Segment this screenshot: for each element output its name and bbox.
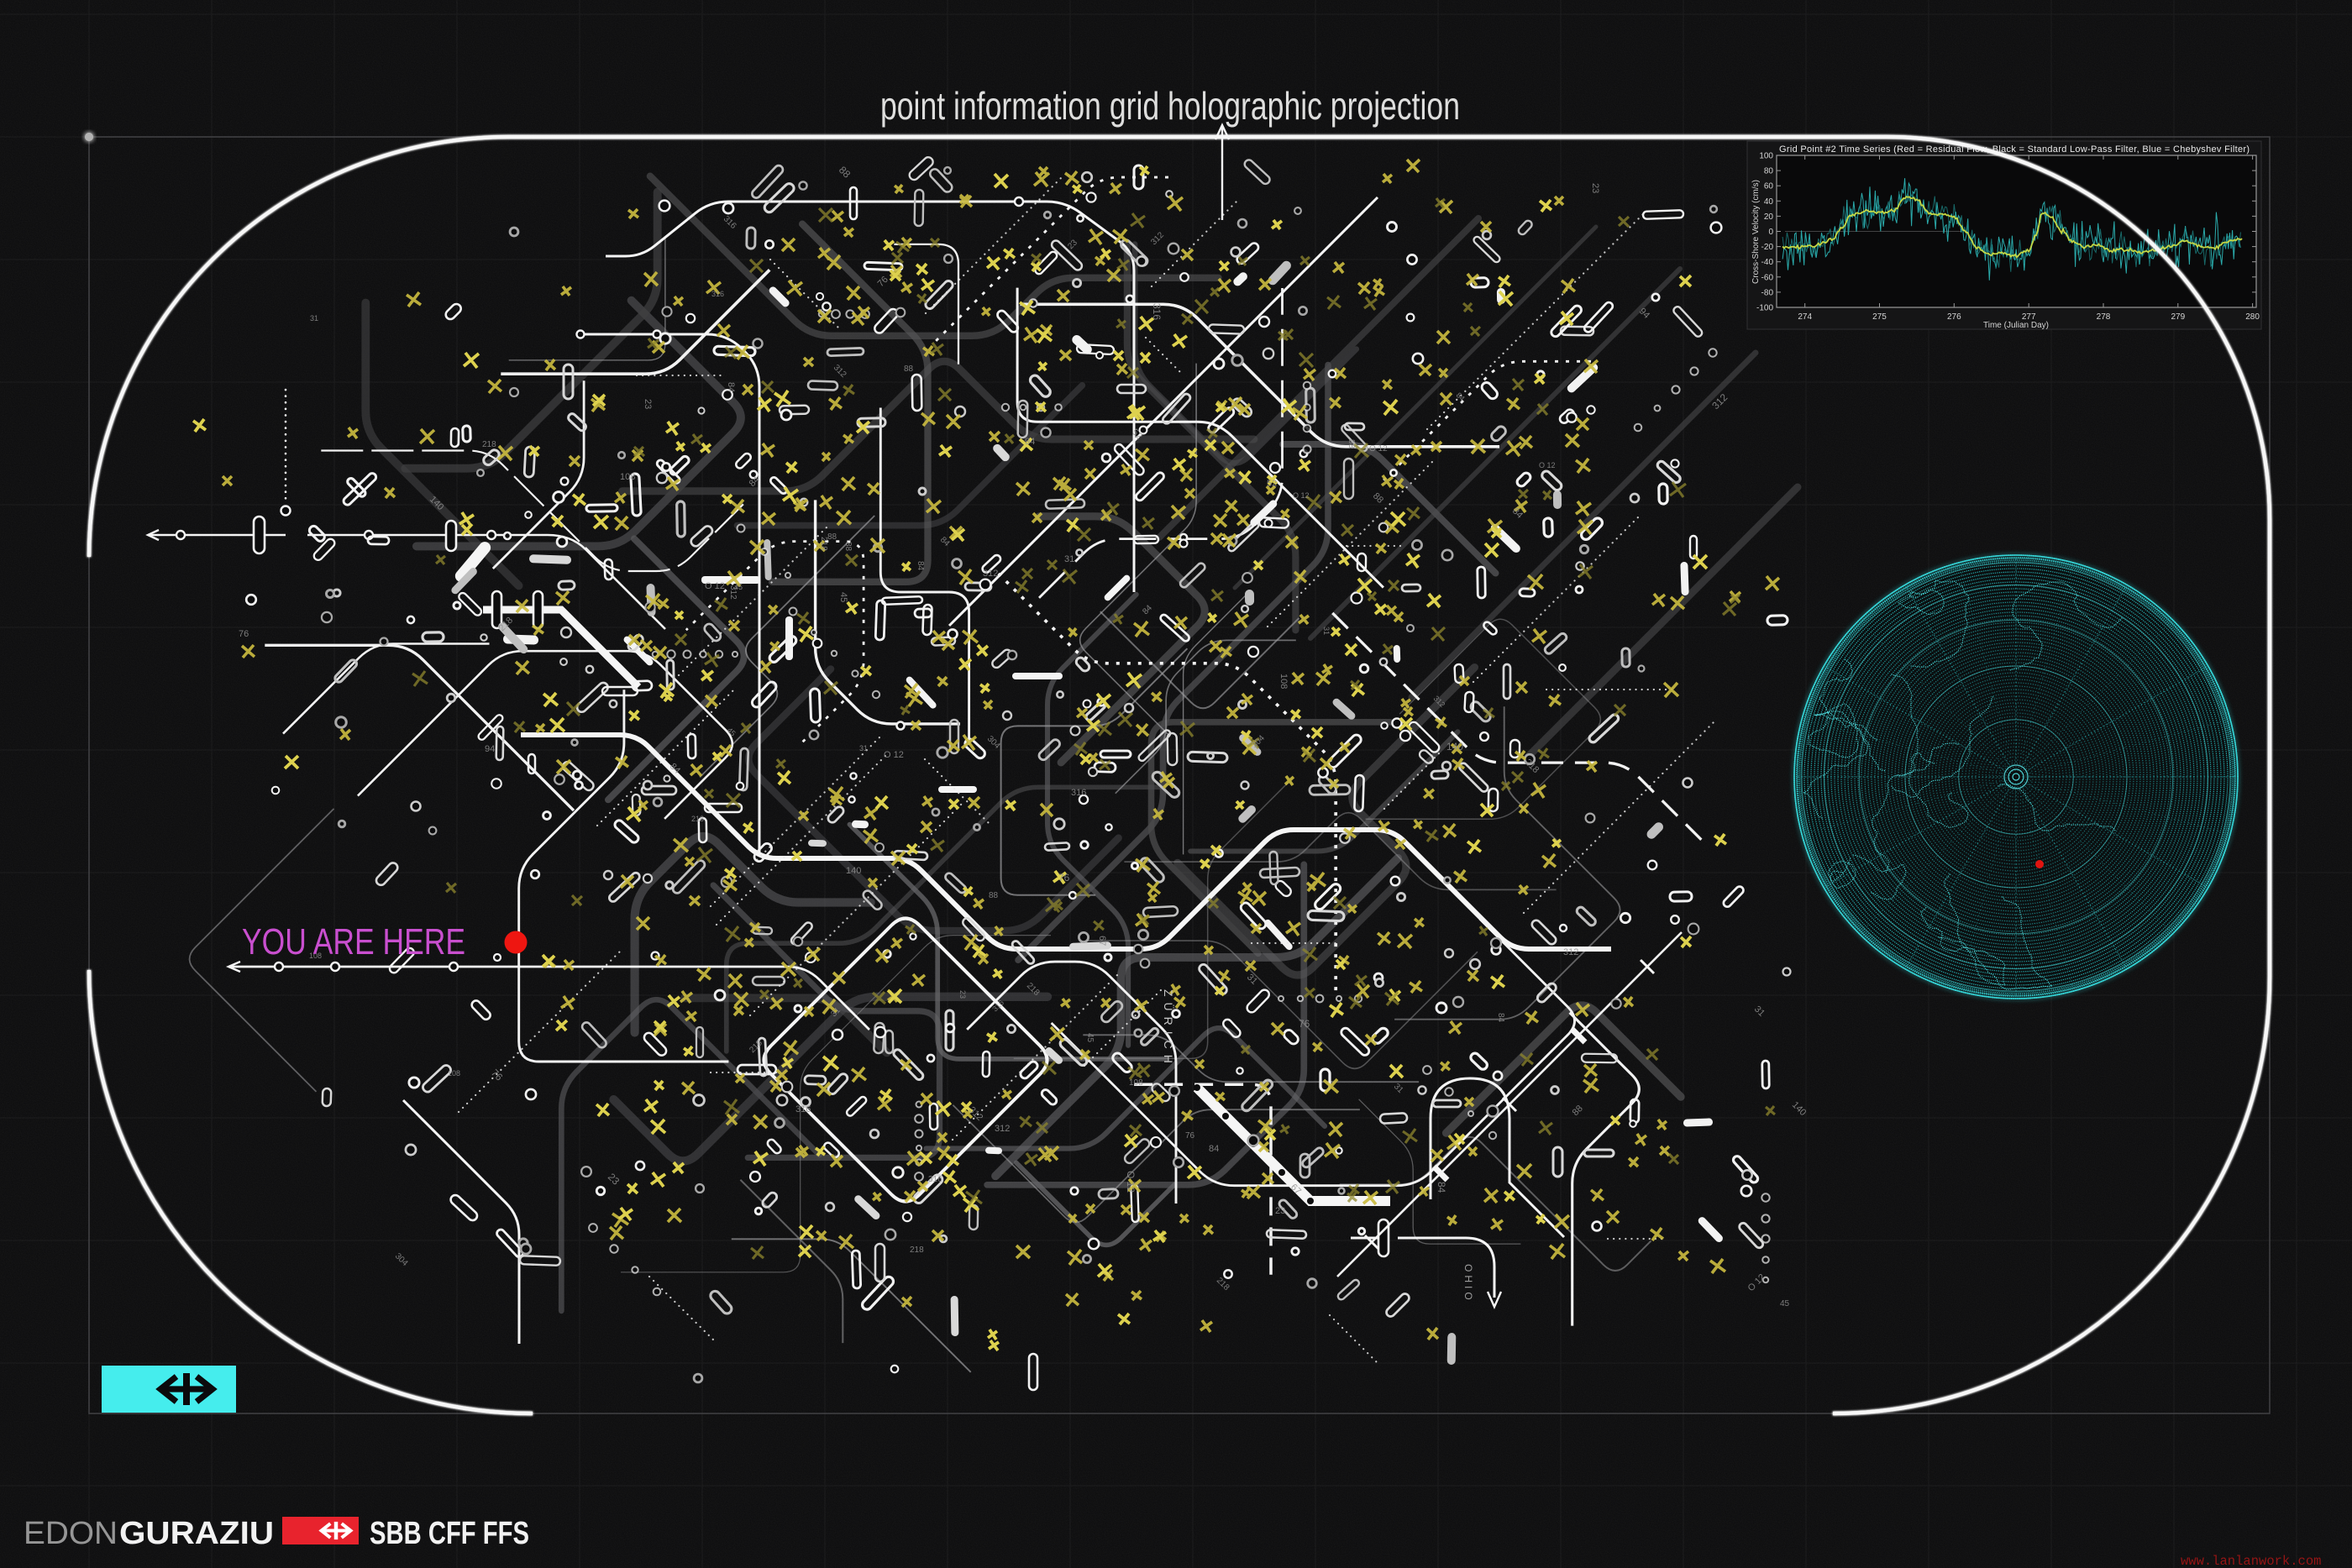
svg-text:-20: -20 [1761,243,1774,252]
svg-text:108: 108 [1278,674,1289,689]
svg-text:218: 218 [819,537,828,551]
svg-text:40: 40 [1764,197,1774,207]
svg-text:276: 276 [1947,312,1961,322]
svg-text:20: 20 [1764,212,1774,222]
svg-text:point information grid hologra: point information grid holographic proje… [880,84,1460,128]
svg-text:140: 140 [1446,741,1463,753]
svg-text:45: 45 [1085,1033,1095,1043]
svg-text:280: 280 [2245,312,2260,322]
svg-text:88: 88 [1347,439,1356,449]
svg-text:312: 312 [995,1124,1010,1134]
svg-text:316: 316 [1151,303,1163,320]
svg-text:84: 84 [1496,1013,1505,1023]
svg-text:80: 80 [1764,167,1774,176]
svg-text:312: 312 [728,585,738,600]
svg-text:www.lanlanwork.com: www.lanlanwork.com [2181,1554,2321,1568]
svg-text:76: 76 [1185,1131,1195,1141]
svg-text:275: 275 [1872,312,1887,322]
svg-text:218: 218 [910,1245,924,1255]
svg-text:84: 84 [726,382,736,392]
svg-text:23: 23 [1275,1206,1285,1216]
svg-text:140: 140 [846,866,861,876]
svg-text:SBB CFF FFS: SBB CFF FFS [370,1516,529,1551]
svg-text:O 12: O 12 [1369,444,1388,454]
svg-text:84: 84 [1209,1144,1219,1154]
svg-text:45: 45 [838,592,848,602]
svg-text:Time (Julian Day): Time (Julian Day) [1983,321,2049,330]
svg-text:45: 45 [1780,1299,1790,1308]
svg-text:94: 94 [485,744,495,754]
svg-text:YOU ARE HERE: YOU ARE HERE [242,921,465,962]
svg-text:31: 31 [1064,554,1074,564]
svg-text:-60: -60 [1761,273,1774,282]
svg-text:O 12: O 12 [884,750,904,760]
svg-text:OHIO: OHIO [1462,1264,1474,1303]
svg-text:316: 316 [928,1175,942,1184]
svg-text:100: 100 [1759,152,1773,161]
svg-text:84: 84 [1436,1182,1447,1193]
svg-text:O 12: O 12 [1293,491,1310,500]
svg-text:76: 76 [1299,1018,1310,1030]
svg-text:-100: -100 [1756,304,1773,313]
svg-text:ZÜRICH: ZÜRICH [1162,989,1176,1069]
svg-text:-80: -80 [1761,288,1774,297]
svg-text:274: 274 [1798,312,1812,322]
svg-text:94: 94 [1025,437,1035,447]
svg-text:23: 23 [958,990,967,999]
svg-text:218: 218 [691,815,704,823]
svg-text:0: 0 [1768,228,1773,237]
svg-text:278: 278 [2097,312,2111,322]
svg-text:23: 23 [643,399,653,409]
svg-text:60: 60 [1764,182,1774,191]
svg-text:88: 88 [989,891,999,900]
svg-text:76: 76 [1058,872,1070,884]
svg-text:84: 84 [916,561,925,571]
svg-text:218: 218 [482,440,496,449]
svg-text:31: 31 [859,744,868,753]
svg-text:31: 31 [310,314,318,323]
svg-text:O 12: O 12 [1125,1171,1137,1193]
svg-text:67: 67 [1097,936,1107,946]
svg-text:312: 312 [1563,947,1578,957]
svg-text:316: 316 [795,1104,811,1114]
svg-text:88: 88 [904,364,914,374]
svg-text:O 12: O 12 [705,581,725,591]
svg-text:316: 316 [711,290,724,298]
svg-text:EDON: EDON [24,1516,118,1551]
svg-text:279: 279 [2171,312,2185,322]
svg-text:GURAZIU: GURAZIU [119,1516,274,1551]
svg-text:31: 31 [1322,627,1331,635]
svg-text:52: 52 [1267,479,1277,489]
svg-text:316: 316 [1071,788,1086,798]
svg-text:-40: -40 [1761,258,1774,267]
svg-text:108: 108 [1129,1078,1143,1088]
svg-text:108: 108 [448,1069,460,1078]
svg-text:88: 88 [843,542,853,552]
svg-text:Cross-Shore Velocity (cm/s): Cross-Shore Velocity (cm/s) [1751,180,1761,284]
svg-text:O 12: O 12 [1539,461,1556,469]
svg-text:312: 312 [983,569,998,579]
svg-text:108: 108 [620,472,635,482]
svg-text:Grid Point #2 Time Series (Red: Grid Point #2 Time Series (Red = Residua… [1779,144,2250,155]
svg-text:76: 76 [239,629,249,639]
svg-text:23: 23 [1590,183,1600,193]
